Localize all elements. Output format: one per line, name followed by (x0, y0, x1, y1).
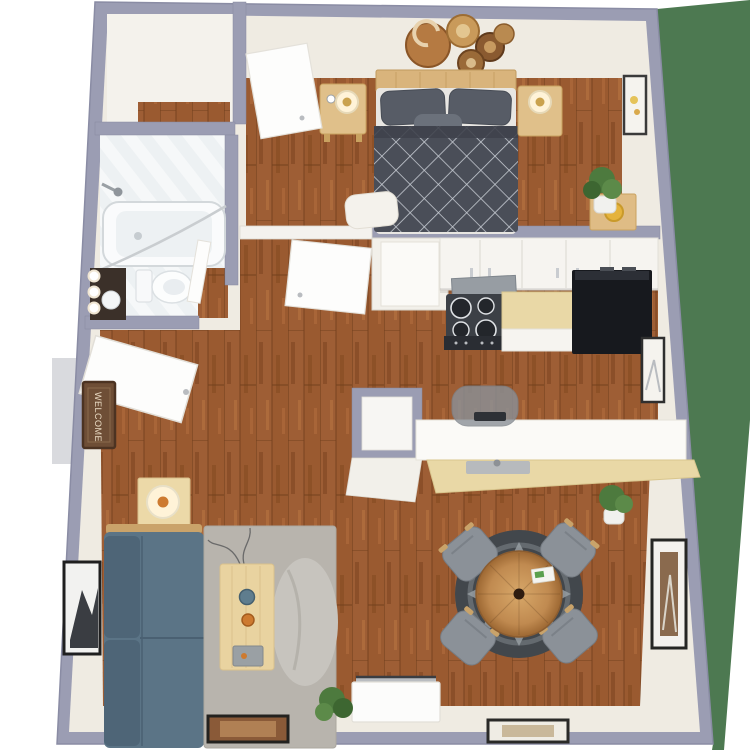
lamp-table (138, 478, 190, 528)
toilet-seat (163, 279, 185, 295)
floor-plan-image: WELCOME (0, 0, 750, 750)
wall-closet-bedroom (233, 2, 246, 124)
hallway-door-handle (298, 293, 303, 298)
welcome-mat: WELCOME (83, 382, 115, 448)
lower-cabinets (502, 329, 574, 351)
alarm-clock (327, 95, 335, 103)
bedroom-wall-frame (624, 76, 646, 134)
wall-bath-hall (225, 135, 238, 285)
leaning-frame-right (488, 720, 568, 742)
welcome-mat-text: WELCOME (93, 392, 103, 442)
shower-head-icon (114, 188, 123, 197)
faucet-icon (494, 460, 501, 467)
sofa-back-cushion-2 (104, 640, 140, 746)
bedroom-door-handle (300, 116, 305, 121)
left-wall-frame (64, 562, 100, 654)
nightstand-right (518, 86, 562, 136)
vanity-light-1 (89, 271, 100, 282)
bed-bench (344, 191, 399, 230)
front-door-handle (183, 389, 189, 395)
vanity-light-3 (89, 303, 100, 314)
right-wall-frame-tall (652, 540, 686, 648)
toilet-tank (136, 270, 152, 302)
stove-control-panel (444, 336, 504, 350)
duvet-fold (374, 126, 518, 138)
wall-closet-bath (95, 122, 235, 135)
hallway-door (285, 240, 371, 314)
speaker (240, 590, 255, 605)
tub-drain (134, 232, 142, 240)
closet-threshold (138, 102, 230, 124)
vanity-sink (102, 291, 120, 309)
vanity-light-2 (89, 287, 100, 298)
tv-console (352, 676, 440, 722)
leaning-frame-left (208, 716, 288, 742)
refrigerator (572, 267, 652, 354)
remote (233, 646, 263, 666)
linen-closet-door (362, 397, 412, 450)
nightstand-left (320, 84, 366, 142)
laptop (474, 412, 506, 421)
linen-closet-face (346, 458, 422, 502)
table-knot (514, 589, 525, 600)
stove (444, 294, 504, 350)
sofa-back-cushion-1 (104, 536, 140, 638)
breakfast-bar (416, 420, 686, 460)
kitchen-counter (502, 292, 574, 330)
coffee-table (220, 564, 274, 670)
beanbag-chair (272, 558, 338, 686)
sofa (104, 524, 204, 748)
floor-plan-svg: WELCOME (0, 0, 750, 750)
dining-area (436, 516, 602, 669)
bowl (242, 614, 254, 626)
kitchen-wall-frame (642, 338, 664, 402)
utility-closet-panel (381, 242, 439, 306)
